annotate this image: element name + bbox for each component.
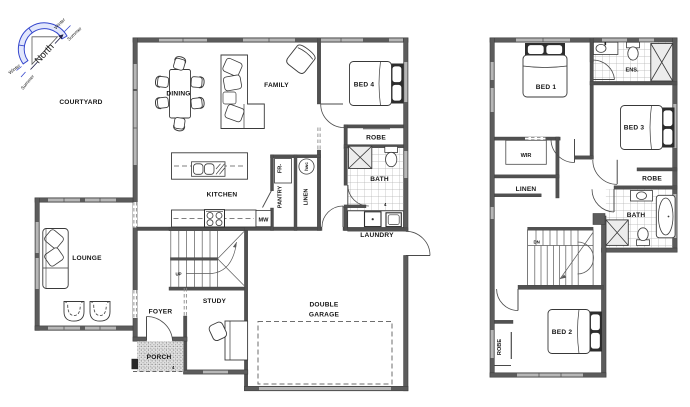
svg-text:WIR: WIR bbox=[521, 153, 532, 159]
svg-text:ROBE: ROBE bbox=[366, 135, 386, 142]
svg-text:LOUNGE: LOUNGE bbox=[72, 255, 102, 262]
svg-text:BATH: BATH bbox=[370, 176, 389, 183]
svg-text:LINEN: LINEN bbox=[516, 186, 537, 193]
svg-text:ROBE: ROBE bbox=[497, 339, 503, 355]
svg-text:UP: UP bbox=[176, 272, 182, 277]
svg-text:ENS.: ENS. bbox=[625, 68, 639, 74]
svg-text:KITCHEN: KITCHEN bbox=[207, 192, 238, 199]
svg-text:GARAGE: GARAGE bbox=[309, 312, 340, 319]
svg-text:BATH: BATH bbox=[627, 212, 646, 219]
svg-text:LAUNDRY: LAUNDRY bbox=[360, 232, 394, 239]
svg-text:PORCH: PORCH bbox=[147, 354, 172, 361]
svg-text:ROBE: ROBE bbox=[642, 176, 662, 183]
svg-text:BED 3: BED 3 bbox=[624, 124, 645, 131]
svg-text:MW: MW bbox=[259, 218, 270, 224]
svg-text:COURTYARD: COURTYARD bbox=[59, 99, 102, 106]
svg-text:STUDY: STUDY bbox=[203, 298, 227, 305]
svg-text:DN: DN bbox=[534, 240, 540, 245]
svg-text:DOUBLE: DOUBLE bbox=[309, 302, 338, 309]
svg-text:FAMILY: FAMILY bbox=[264, 82, 289, 89]
svg-text:LINEN: LINEN bbox=[304, 189, 310, 206]
svg-text:FR-: FR- bbox=[278, 164, 284, 173]
svg-text:PANTRY: PANTRY bbox=[278, 186, 284, 209]
svg-text:BED 2: BED 2 bbox=[552, 329, 573, 336]
svg-text:FOYER: FOYER bbox=[149, 309, 173, 316]
svg-text:hwc: hwc bbox=[304, 162, 309, 171]
svg-text:BED 1: BED 1 bbox=[536, 84, 557, 91]
svg-text:DINING: DINING bbox=[166, 90, 190, 97]
svg-text:BED 4: BED 4 bbox=[354, 82, 375, 89]
